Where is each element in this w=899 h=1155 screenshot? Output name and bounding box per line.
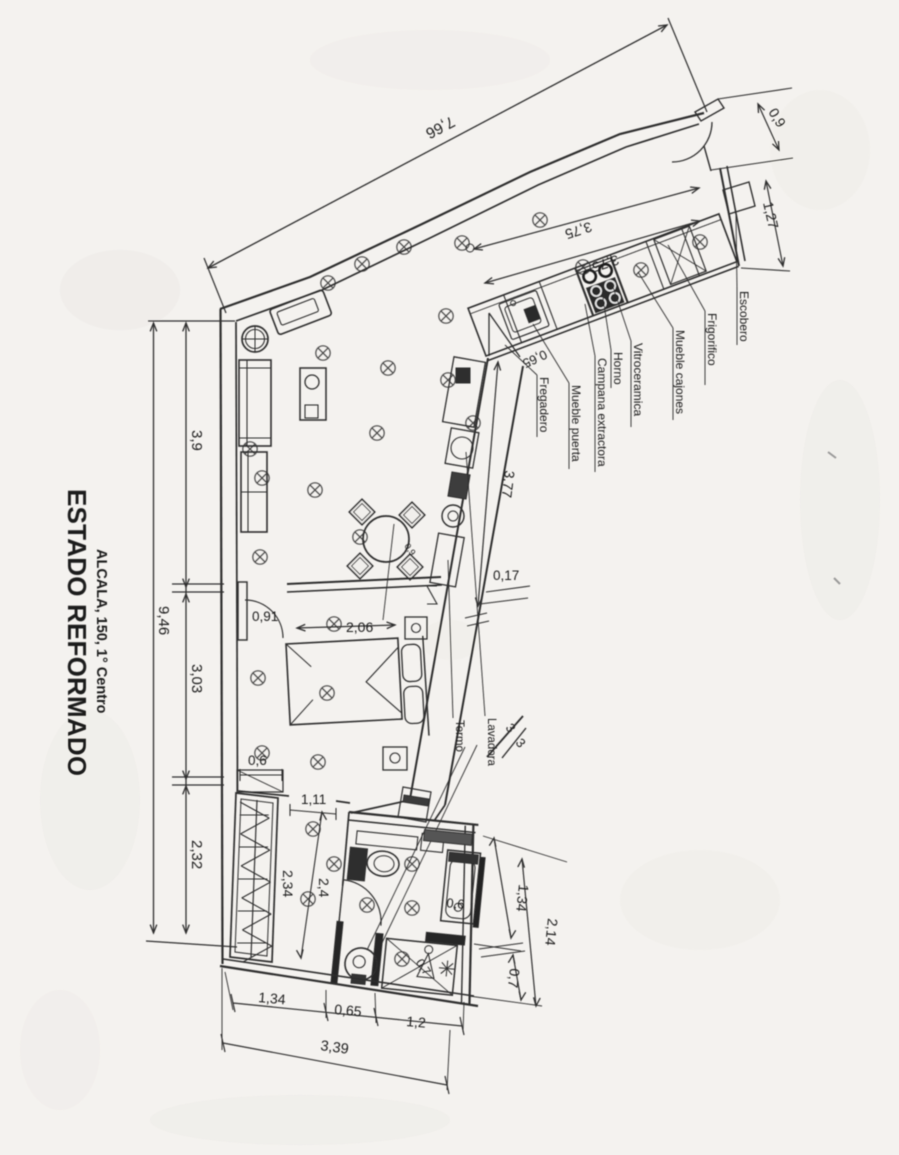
svg-text:3,77: 3,77 (499, 470, 518, 499)
svg-text:Escobero: Escobero (737, 291, 751, 342)
svg-text:1,11: 1,11 (301, 792, 326, 807)
svg-text:Fregadero: Fregadero (537, 377, 551, 433)
svg-text:0,65: 0,65 (334, 1001, 363, 1019)
svg-text:ALCALA, 150, 1° Centro: ALCALA, 150, 1° Centro (93, 549, 109, 714)
svg-text:ESTADO REFORMADO: ESTADO REFORMADO (62, 489, 92, 776)
svg-text:Horno: Horno (611, 352, 625, 385)
svg-text:0,6: 0,6 (446, 895, 465, 912)
svg-text:3,9: 3,9 (188, 430, 205, 451)
svg-text:3,03: 3,03 (188, 664, 205, 693)
svg-text:Mueble puerta: Mueble puerta (569, 385, 583, 462)
svg-text:0,17: 0,17 (493, 568, 519, 583)
svg-text:Termo: Termo (453, 720, 465, 752)
svg-text:1,34: 1,34 (513, 884, 532, 913)
svg-text:Campana extractora: Campana extractora (595, 358, 609, 467)
svg-text:2,32: 2,32 (188, 840, 205, 869)
svg-text:Vitroceramica: Vitroceramica (631, 343, 645, 416)
svg-text:2,4: 2,4 (316, 878, 332, 898)
svg-text:Lavadora: Lavadora (485, 718, 497, 767)
svg-text:2,34: 2,34 (280, 870, 296, 897)
svg-text:1,2: 1,2 (406, 1013, 427, 1031)
svg-text:0,7: 0,7 (505, 968, 523, 989)
svg-text:Mueble cajones: Mueble cajones (673, 330, 687, 414)
svg-text:1,34: 1,34 (258, 989, 287, 1007)
svg-text:0,91: 0,91 (252, 609, 278, 624)
svg-text:2,06: 2,06 (346, 619, 373, 635)
svg-text:Frigorifico: Frigorifico (705, 313, 719, 366)
svg-text:2,14: 2,14 (542, 918, 561, 947)
svg-text:9,46: 9,46 (155, 606, 172, 635)
